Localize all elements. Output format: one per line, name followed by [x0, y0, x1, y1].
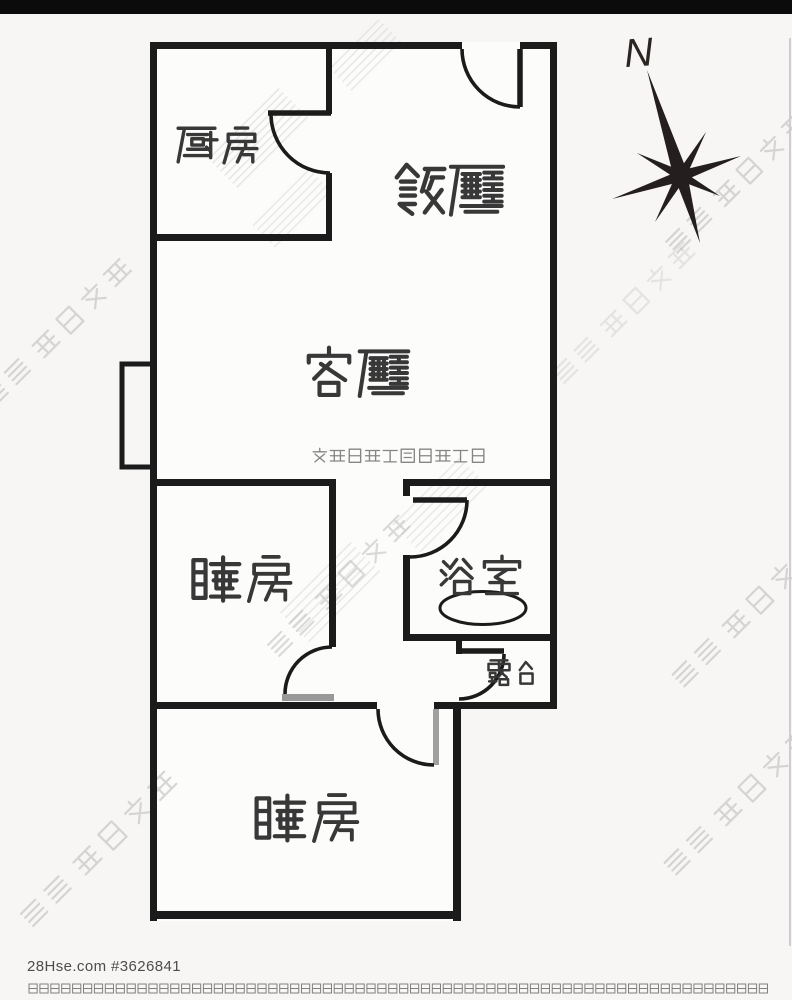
svg-text:28Hse.com #3626841: 28Hse.com #3626841 [27, 958, 181, 975]
svg-text:N: N [623, 30, 655, 76]
